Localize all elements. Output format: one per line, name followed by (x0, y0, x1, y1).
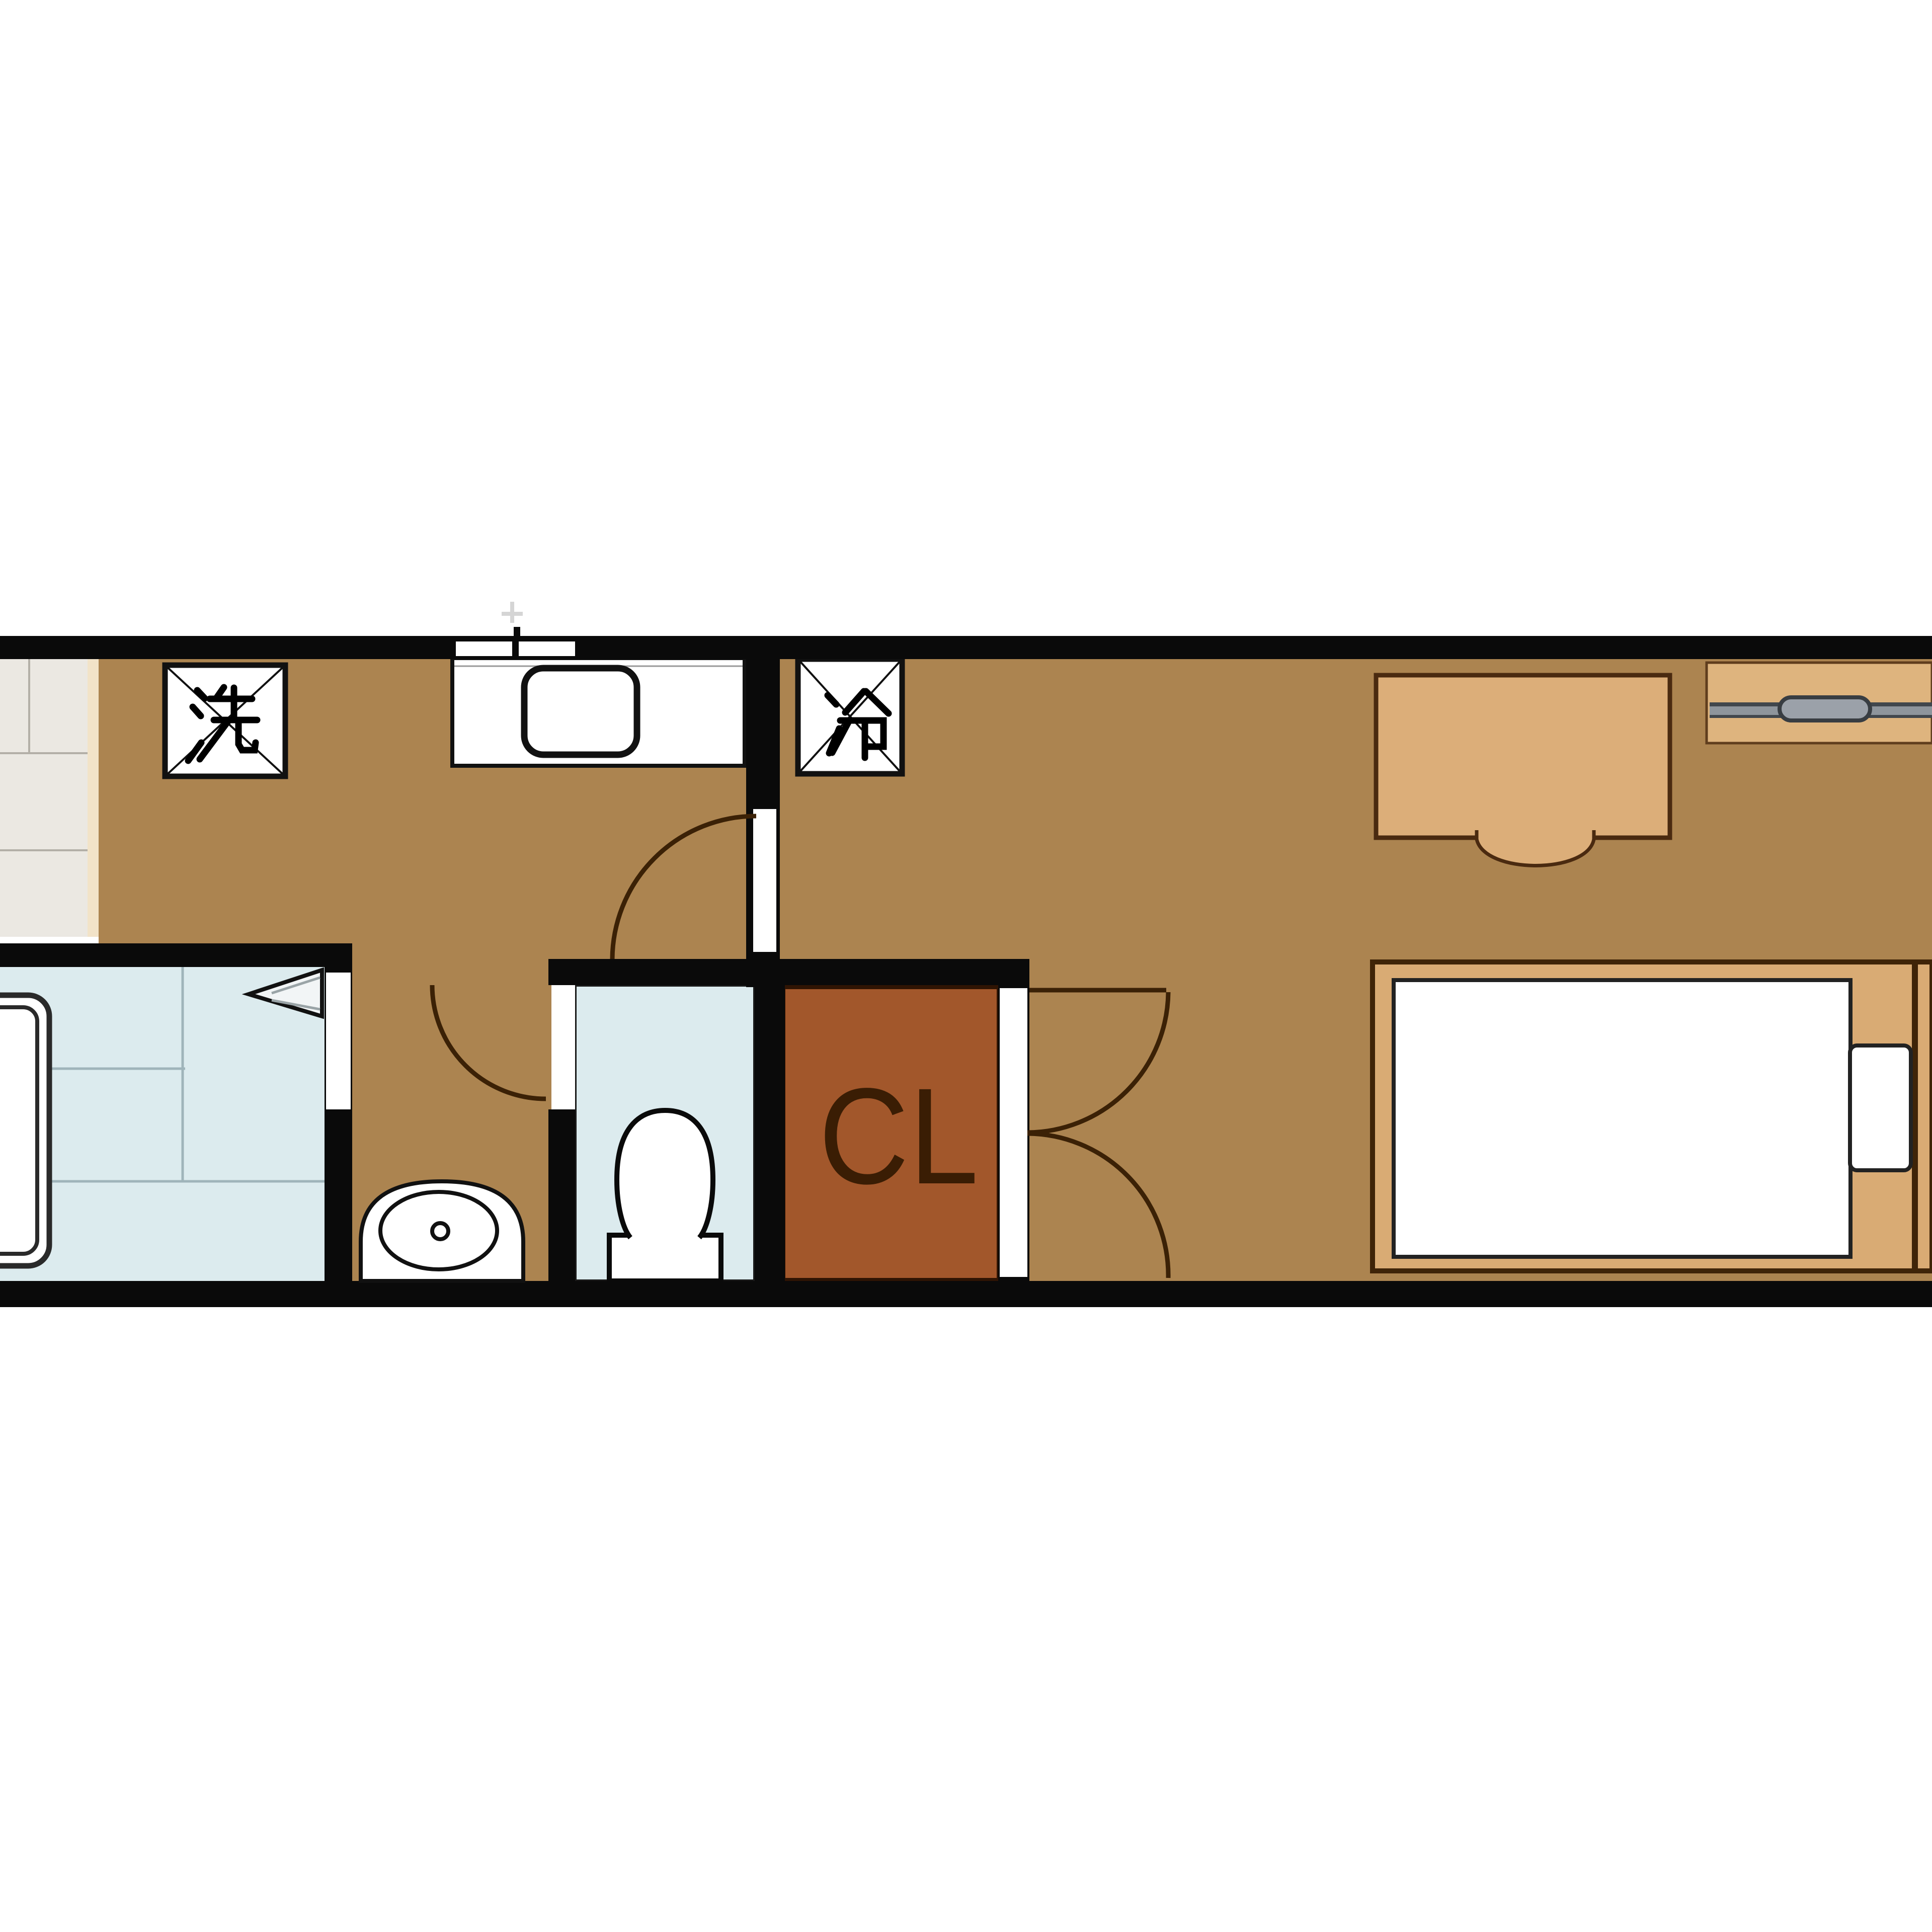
svg-text:CL: CL (819, 1060, 979, 1213)
